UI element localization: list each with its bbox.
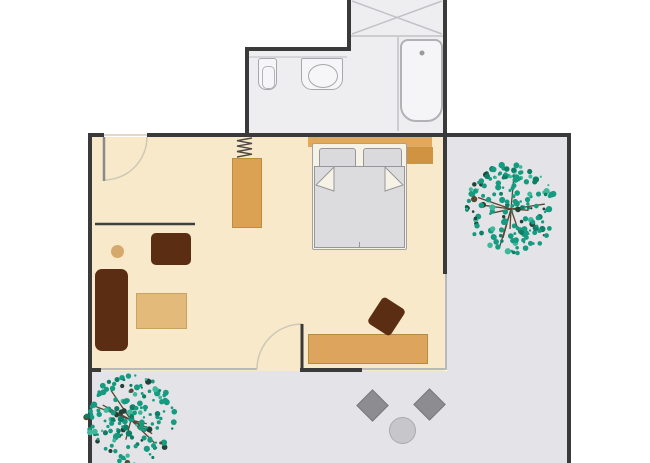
- tree-icon: [83, 372, 179, 463]
- wall-bathroom-left: [245, 47, 249, 133]
- wall-top: [147, 133, 571, 137]
- wall-terrace-right: [567, 133, 571, 463]
- wall-right: [443, 0, 447, 274]
- window-wall-bottom-left: [101, 368, 257, 370]
- window-wall-right: [445, 274, 447, 370]
- nightstand: [407, 147, 433, 164]
- washbasin: [301, 58, 343, 90]
- toilet-bowl: [262, 66, 275, 89]
- tree-icon: [463, 161, 559, 257]
- floor-plan: [0, 0, 650, 463]
- wall-bottom-middle: [300, 368, 362, 372]
- sofa: [95, 269, 128, 351]
- patio-table: [389, 417, 416, 444]
- washbasin-bowl: [308, 64, 338, 88]
- wardrobe: [232, 158, 262, 228]
- coffee-table: [136, 293, 187, 329]
- desk: [308, 334, 428, 364]
- wall-bathroom-top: [245, 47, 351, 51]
- blanket: [314, 166, 405, 248]
- armchair: [151, 233, 191, 265]
- wall-shower-left: [347, 0, 351, 51]
- window-wall-bottom-right: [362, 368, 447, 370]
- bathtub: [400, 39, 443, 122]
- toilet: [258, 58, 277, 90]
- stool: [111, 245, 124, 258]
